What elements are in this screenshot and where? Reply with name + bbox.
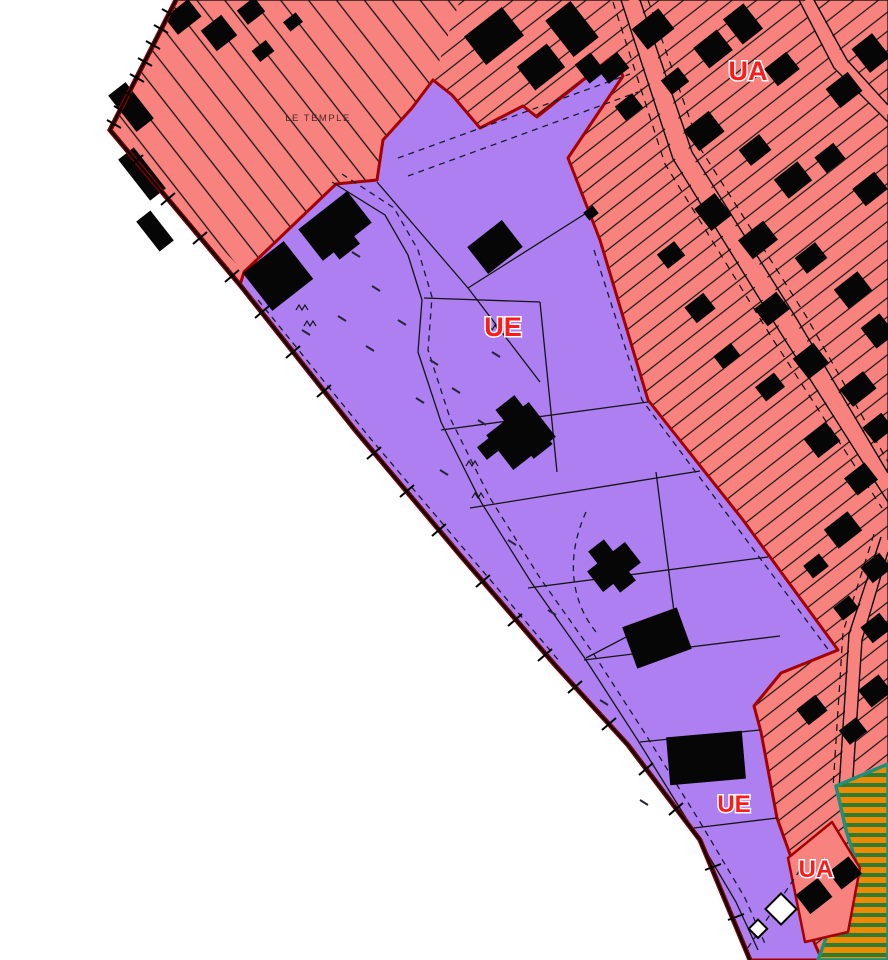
zone-label-ue-central: UE [484,312,522,342]
zone-label-ue-south: UE [717,791,750,818]
zone-label-ua-south: UA [799,856,834,883]
zoning-map-canvas[interactable]: LE TEMPLE UA UE UE UA [0,0,888,960]
zoning-map-viewport[interactable]: LE TEMPLE UA UE UE UA [0,0,888,960]
place-label-le-temple: LE TEMPLE [285,113,351,124]
zone-label-ua-north: UA [729,56,768,86]
